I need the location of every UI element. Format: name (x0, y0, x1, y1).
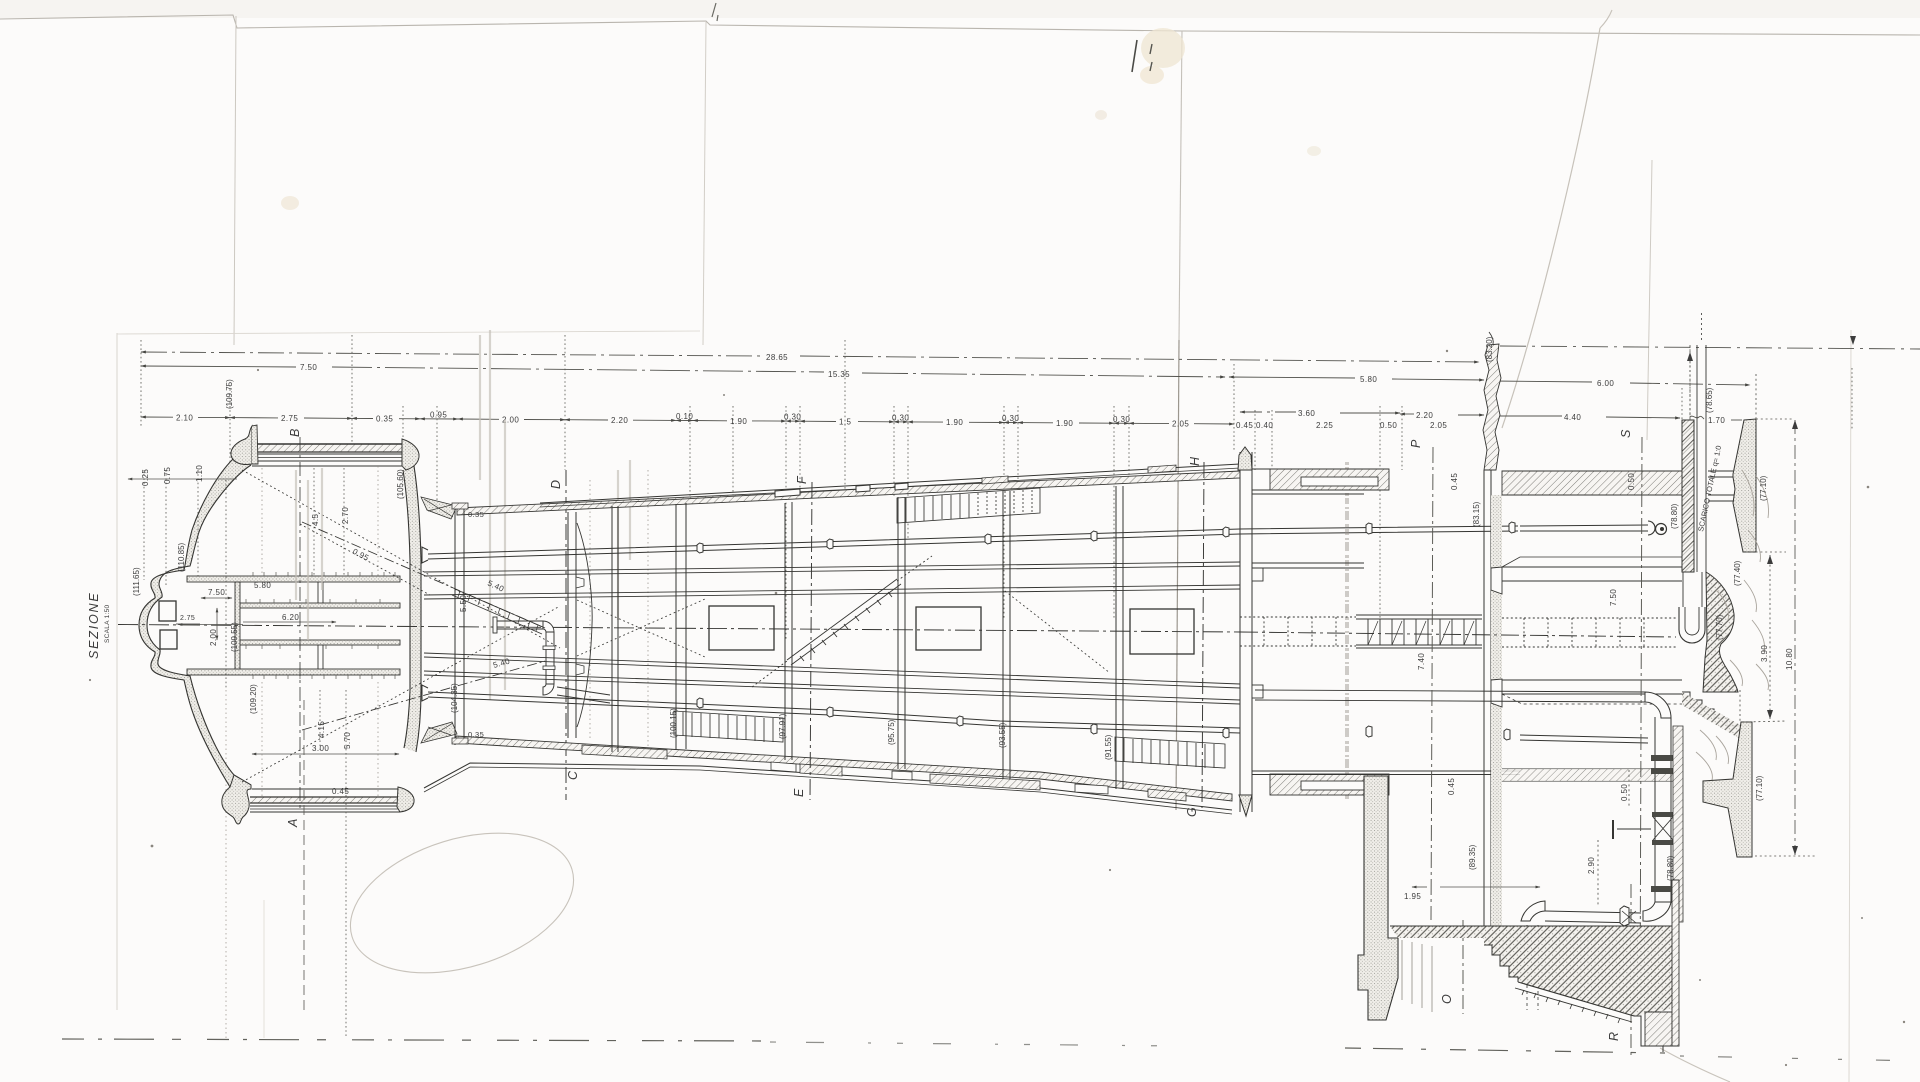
svg-text:SEZIONE: SEZIONE (87, 592, 101, 659)
svg-text:28.65: 28.65 (766, 353, 788, 362)
svg-text:4.5: 4.5 (311, 514, 320, 526)
svg-text:(109.75): (109.75) (225, 379, 234, 409)
svg-text:6.00: 6.00 (1597, 379, 1614, 388)
svg-text:5.80: 5.80 (254, 581, 271, 590)
svg-text:5.70: 5.70 (343, 732, 352, 749)
svg-text:5.50: 5.50 (459, 595, 468, 612)
svg-text:(105.60): (105.60) (396, 469, 405, 499)
svg-text:6.20: 6.20 (282, 613, 299, 622)
svg-text:7.50: 7.50 (1609, 589, 1618, 606)
svg-text:0.30: 0.30 (1002, 414, 1019, 423)
svg-text:R: R (1607, 1032, 1621, 1041)
svg-text:0.45: 0.45 (1236, 421, 1253, 430)
svg-text:(83.15): (83.15) (1472, 501, 1481, 527)
svg-text:2.75: 2.75 (281, 414, 298, 423)
svg-text:10.80: 10.80 (1785, 648, 1794, 670)
svg-text:2.90: 2.90 (1587, 857, 1596, 874)
svg-text:H: H (1188, 456, 1202, 466)
svg-text:(77.10): (77.10) (1755, 775, 1764, 801)
svg-text:1.70: 1.70 (1708, 416, 1725, 425)
svg-text:0.35: 0.35 (468, 730, 484, 739)
svg-text:(109.55): (109.55) (230, 622, 239, 652)
svg-text:(109.20): (109.20) (249, 684, 258, 714)
svg-text:0.30: 0.30 (1113, 415, 1130, 424)
svg-text:5.80: 5.80 (1360, 375, 1377, 384)
svg-text:1.90: 1.90 (946, 418, 963, 427)
svg-text:0.35: 0.35 (468, 510, 484, 519)
svg-text:2.20: 2.20 (1416, 411, 1433, 420)
svg-text:0.45: 0.45 (332, 787, 349, 796)
svg-text:D: D (549, 480, 563, 489)
svg-text:C: C (566, 770, 580, 780)
svg-text:0.40: 0.40 (1256, 421, 1273, 430)
svg-text:0.75: 0.75 (163, 467, 172, 484)
svg-text:0.45: 0.45 (1447, 778, 1456, 795)
svg-text:B: B (288, 429, 302, 437)
svg-text:G: G (1185, 807, 1199, 817)
svg-text:(78.80): (78.80) (1670, 503, 1679, 529)
svg-text:(95.75): (95.75) (887, 719, 896, 745)
svg-text:(104.35): (104.35) (450, 683, 459, 713)
svg-text:(91.55): (91.55) (1104, 734, 1113, 760)
svg-text:2.00: 2.00 (209, 629, 218, 646)
svg-text:2.70: 2.70 (341, 507, 350, 524)
svg-text:(83.20): (83.20) (1485, 336, 1494, 362)
svg-text:7.40: 7.40 (1417, 653, 1426, 670)
svg-text:2.05: 2.05 (1172, 420, 1189, 429)
svg-text:(77.70): (77.70) (1715, 614, 1724, 640)
svg-text:3.90: 3.90 (1760, 645, 1769, 662)
svg-text:(100.15): (100.15) (669, 708, 678, 738)
svg-text:0.50: 0.50 (1627, 473, 1636, 490)
svg-text:S: S (1619, 429, 1633, 438)
svg-text:(93.55): (93.55) (998, 722, 1007, 748)
svg-text:2.10: 2.10 (176, 413, 193, 422)
svg-text:2.75: 2.75 (180, 615, 195, 622)
svg-text:1.5: 1.5 (839, 418, 851, 427)
svg-text:0.95: 0.95 (430, 410, 447, 419)
svg-text:1.10: 1.10 (195, 465, 204, 482)
svg-text:A: A (286, 819, 300, 828)
svg-text:0.35: 0.35 (376, 415, 393, 424)
svg-text:(77.10): (77.10) (1759, 475, 1768, 501)
svg-text:E: E (792, 788, 806, 797)
svg-text:SCALA 1:50: SCALA 1:50 (104, 605, 111, 643)
svg-text:3.00: 3.00 (312, 744, 329, 753)
svg-text:0.30: 0.30 (892, 413, 909, 422)
svg-text:O: O (1440, 994, 1454, 1004)
svg-text:1.90: 1.90 (730, 417, 747, 426)
svg-text:0.10: 0.10 (676, 412, 693, 421)
svg-text:7.50: 7.50 (300, 363, 317, 372)
svg-text:0.50: 0.50 (1620, 784, 1629, 801)
svg-text:2.20: 2.20 (611, 416, 628, 425)
svg-text:(78.80): (78.80) (1666, 855, 1675, 881)
svg-text:2.05: 2.05 (1430, 421, 1447, 430)
svg-text:(78.65): (78.65) (1705, 387, 1714, 413)
svg-text:(110.85): (110.85) (177, 542, 186, 572)
svg-text:4.40: 4.40 (1564, 413, 1581, 422)
svg-text:1.90: 1.90 (1056, 419, 1073, 428)
svg-text:0.50: 0.50 (1380, 421, 1397, 430)
svg-text:(77.40): (77.40) (1733, 560, 1742, 586)
svg-text:7.50: 7.50 (208, 588, 225, 597)
svg-text:P: P (1409, 439, 1423, 448)
svg-text:4.15: 4.15 (317, 721, 326, 738)
svg-text:(111.65): (111.65) (132, 567, 141, 596)
svg-text:(89.35): (89.35) (1468, 844, 1477, 870)
svg-text:3.60: 3.60 (1298, 409, 1315, 418)
svg-text:1.95: 1.95 (1404, 892, 1421, 901)
svg-text:2.25: 2.25 (1316, 421, 1333, 430)
svg-text:0.45: 0.45 (1450, 473, 1459, 490)
svg-text:0.30: 0.30 (784, 413, 801, 422)
svg-text:15.35: 15.35 (828, 370, 850, 379)
svg-text:0.25: 0.25 (141, 469, 150, 486)
svg-text:(97.91): (97.91) (778, 713, 787, 739)
